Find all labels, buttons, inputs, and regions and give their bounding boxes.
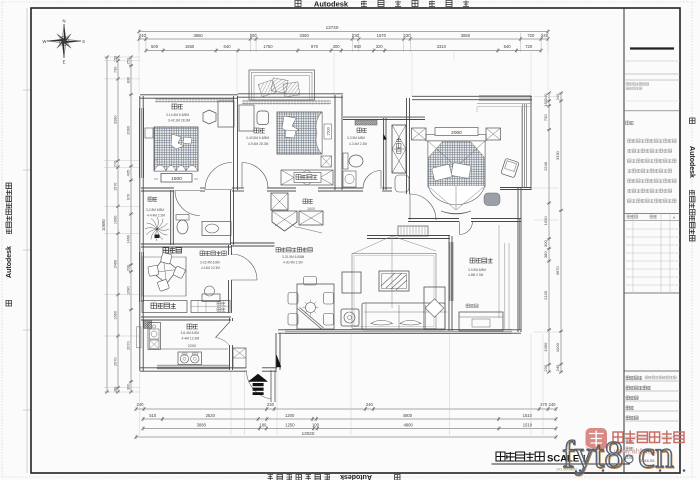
svg-text:Autodesk: Autodesk bbox=[6, 246, 13, 278]
svg-text:3-31.5M 6.8/8M: 3-31.5M 6.8/8M bbox=[282, 255, 305, 259]
svg-text:Autodesk: Autodesk bbox=[688, 146, 695, 178]
svg-text:150: 150 bbox=[543, 99, 548, 106]
svg-text:1000: 1000 bbox=[555, 342, 560, 352]
svg-text:320: 320 bbox=[376, 44, 384, 49]
svg-text:4-4.4M 2.3M: 4-4.4M 2.3M bbox=[147, 214, 165, 218]
svg-text:2000: 2000 bbox=[451, 130, 462, 136]
svg-text:1570: 1570 bbox=[114, 183, 118, 191]
svg-text:3-43.5M 6.8/8M: 3-43.5M 6.8/8M bbox=[246, 136, 269, 140]
svg-text:E: E bbox=[63, 60, 66, 65]
svg-text:1600: 1600 bbox=[307, 207, 315, 211]
svg-text:4-14M 22.3M: 4-14M 22.3M bbox=[201, 266, 220, 270]
svg-text:300: 300 bbox=[333, 44, 341, 49]
svg-text:Autodesk: Autodesk bbox=[340, 473, 372, 480]
svg-text:3-23.4M 6.8M: 3-23.4M 6.8M bbox=[200, 261, 220, 265]
svg-text:2200: 2200 bbox=[188, 344, 196, 348]
svg-text:Autodesk: Autodesk bbox=[314, 0, 349, 9]
svg-text:1090: 1090 bbox=[114, 216, 118, 224]
svg-text:3-6.4M 6.8M: 3-6.4M 6.8M bbox=[181, 331, 200, 335]
svg-text:230: 230 bbox=[267, 402, 275, 407]
svg-text:3850: 3850 bbox=[461, 33, 471, 38]
svg-text:fyt8: fyt8 bbox=[562, 434, 623, 476]
svg-text:cn: cn bbox=[638, 434, 674, 476]
svg-text:3280: 3280 bbox=[114, 115, 118, 123]
svg-text:510: 510 bbox=[149, 413, 157, 418]
svg-text:W: W bbox=[43, 39, 47, 44]
svg-text:1550: 1550 bbox=[185, 44, 195, 49]
svg-text:380: 380 bbox=[543, 251, 548, 258]
svg-text:3330: 3330 bbox=[555, 150, 560, 160]
svg-text:10690: 10690 bbox=[101, 219, 106, 231]
svg-text:730: 730 bbox=[114, 67, 118, 73]
svg-text:S: S bbox=[82, 39, 85, 44]
svg-text:2240: 2240 bbox=[543, 161, 548, 171]
svg-text:4-30.4M 2.3M: 4-30.4M 2.3M bbox=[283, 261, 303, 265]
svg-text:1660: 1660 bbox=[114, 311, 118, 319]
svg-text:180: 180 bbox=[259, 423, 267, 428]
svg-text:300: 300 bbox=[127, 384, 131, 390]
svg-text:3-14.6M 6.8/8M: 3-14.6M 6.8/8M bbox=[166, 113, 189, 117]
svg-text:3-42.3M 28.3M: 3-42.3M 28.3M bbox=[168, 119, 190, 123]
svg-text:3650: 3650 bbox=[193, 33, 203, 38]
svg-text:240: 240 bbox=[136, 402, 144, 407]
svg-text:640: 640 bbox=[224, 44, 232, 49]
svg-text:100: 100 bbox=[312, 423, 320, 428]
svg-text:2460: 2460 bbox=[114, 260, 118, 268]
svg-text:250: 250 bbox=[127, 58, 131, 64]
svg-text:3-3.5M 6/8M: 3-3.5M 6/8M bbox=[347, 136, 365, 140]
svg-text:240: 240 bbox=[549, 402, 557, 407]
svg-text:4800: 4800 bbox=[403, 423, 413, 428]
svg-text:2060: 2060 bbox=[127, 126, 131, 134]
svg-text:240: 240 bbox=[555, 364, 560, 371]
svg-text:3-9.5M 6/8M: 3-9.5M 6/8M bbox=[468, 268, 486, 272]
svg-text:1090: 1090 bbox=[127, 286, 131, 294]
svg-text:4-3.4M 2.3M: 4-3.4M 2.3M bbox=[349, 142, 367, 146]
svg-text:2100: 2100 bbox=[543, 290, 548, 300]
svg-text:970: 970 bbox=[311, 44, 319, 49]
svg-text:1750: 1750 bbox=[263, 44, 273, 49]
svg-text:830: 830 bbox=[127, 77, 131, 83]
svg-text:1200: 1200 bbox=[285, 413, 295, 418]
svg-text:720: 720 bbox=[525, 44, 533, 49]
svg-text:4-8M 2.3M: 4-8M 2.3M bbox=[468, 273, 484, 277]
svg-text:1460: 1460 bbox=[127, 235, 131, 243]
svg-text:200: 200 bbox=[127, 265, 131, 271]
svg-text:150: 150 bbox=[114, 56, 118, 62]
svg-text:240: 240 bbox=[366, 402, 374, 407]
svg-text:4-9.6M 28.3M: 4-9.6M 28.3M bbox=[248, 142, 269, 146]
svg-text:13740: 13740 bbox=[326, 25, 339, 30]
svg-text:970: 970 bbox=[127, 194, 131, 200]
svg-text:3-2.8M 6/8M: 3-2.8M 6/8M bbox=[146, 208, 164, 212]
svg-text:230: 230 bbox=[352, 33, 360, 38]
svg-text:13020: 13020 bbox=[302, 431, 315, 436]
svg-text:240: 240 bbox=[139, 33, 147, 38]
svg-text:N: N bbox=[62, 19, 65, 24]
svg-text:1500: 1500 bbox=[171, 176, 182, 182]
svg-text:1090: 1090 bbox=[543, 216, 548, 226]
svg-text:500: 500 bbox=[151, 44, 159, 49]
svg-text:2520: 2520 bbox=[206, 413, 216, 418]
svg-text:3080: 3080 bbox=[197, 423, 207, 428]
svg-text:730: 730 bbox=[543, 114, 548, 121]
svg-text:300: 300 bbox=[543, 240, 548, 247]
svg-text:230: 230 bbox=[404, 33, 412, 38]
svg-text:720: 720 bbox=[527, 33, 535, 38]
svg-text:1500: 1500 bbox=[327, 127, 331, 135]
svg-text:270: 270 bbox=[114, 161, 118, 167]
svg-text:1250: 1250 bbox=[285, 423, 295, 428]
svg-text:3670: 3670 bbox=[555, 266, 560, 276]
svg-text:1060: 1060 bbox=[543, 342, 548, 352]
svg-text:950: 950 bbox=[354, 44, 362, 49]
svg-text:4800: 4800 bbox=[403, 413, 413, 418]
svg-text:540: 540 bbox=[504, 44, 512, 49]
svg-text:3310: 3310 bbox=[437, 44, 447, 49]
svg-text:270: 270 bbox=[540, 402, 548, 407]
svg-text:2070: 2070 bbox=[127, 341, 131, 349]
svg-text:1510: 1510 bbox=[523, 423, 533, 428]
svg-text:405: 405 bbox=[127, 170, 131, 176]
svg-text:240: 240 bbox=[541, 33, 549, 38]
svg-text:2070: 2070 bbox=[114, 358, 118, 366]
svg-text:1570: 1570 bbox=[377, 33, 387, 38]
svg-text:230: 230 bbox=[543, 364, 548, 371]
svg-text:3360: 3360 bbox=[299, 33, 309, 38]
svg-text:4-4M 12.3M: 4-4M 12.3M bbox=[182, 337, 200, 341]
